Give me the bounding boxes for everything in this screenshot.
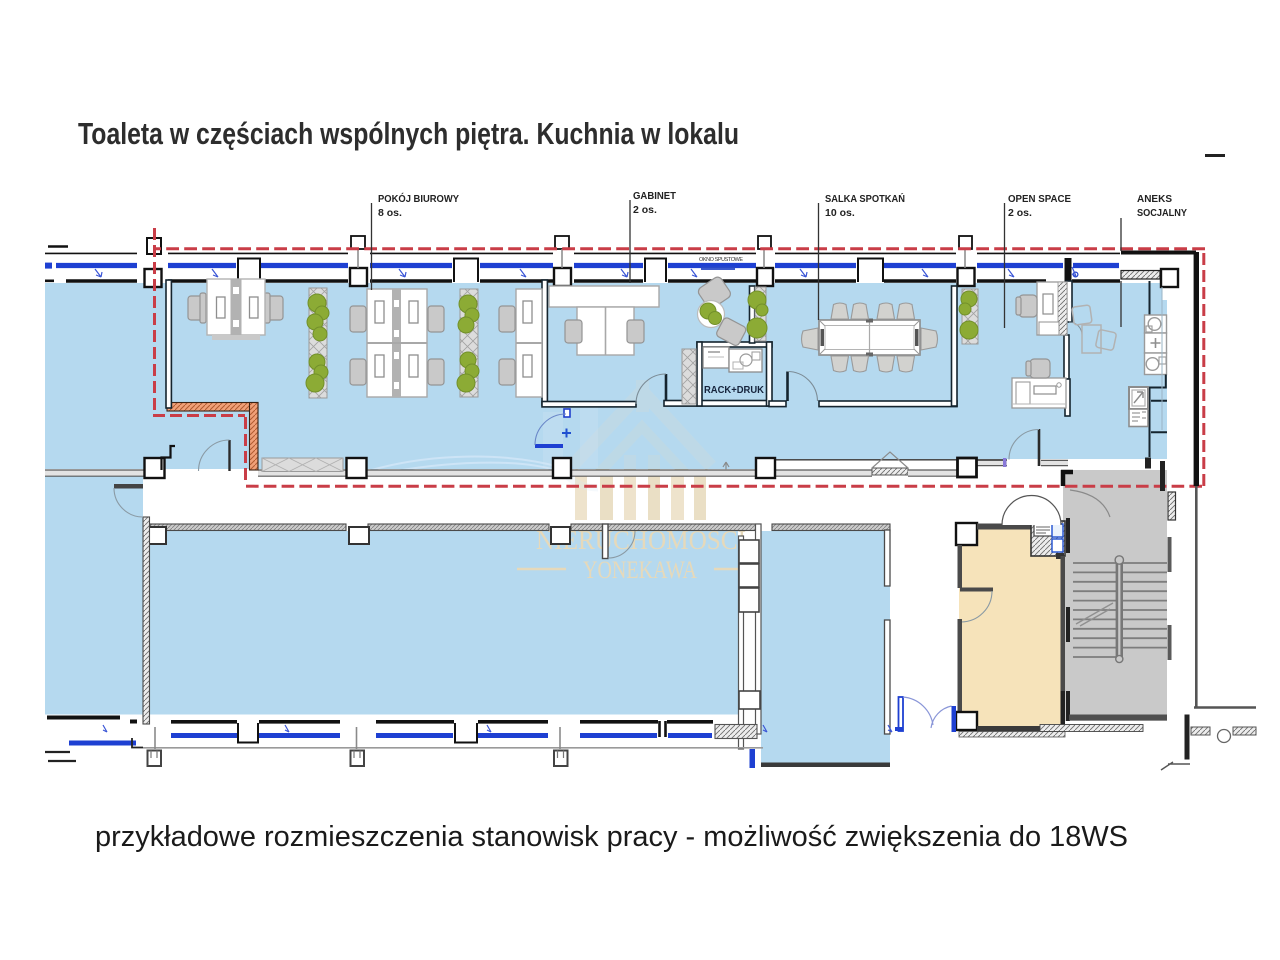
svg-text:GABINET: GABINET [633,190,677,202]
svg-text:przykładowe rozmieszczenia sta: przykładowe rozmieszczenia stanowisk pra… [95,821,1128,853]
svg-text:YONEKAWA: YONEKAWA [583,557,697,584]
svg-text:OPEN SPACE: OPEN SPACE [1008,193,1071,205]
svg-text:POKÓJ BIUROWY: POKÓJ BIUROWY [378,192,459,205]
svg-text:SOCJALNY: SOCJALNY [1137,207,1187,219]
svg-text:2 os.: 2 os. [1008,207,1032,219]
svg-text:SALKA SPOTKAŃ: SALKA SPOTKAŃ [825,192,905,205]
svg-text:2 os.: 2 os. [633,204,657,216]
svg-text:10 os.: 10 os. [825,207,855,219]
svg-text:RACK+DRUK: RACK+DRUK [704,385,765,396]
svg-text:ANEKS: ANEKS [1137,193,1172,205]
svg-text:Toaleta w częściach wspólnych: Toaleta w częściach wspólnych piętra. Ku… [78,116,739,151]
svg-text:OKNO SPUSTOWE: OKNO SPUSTOWE [699,257,743,263]
svg-text:8 os.: 8 os. [378,207,402,219]
